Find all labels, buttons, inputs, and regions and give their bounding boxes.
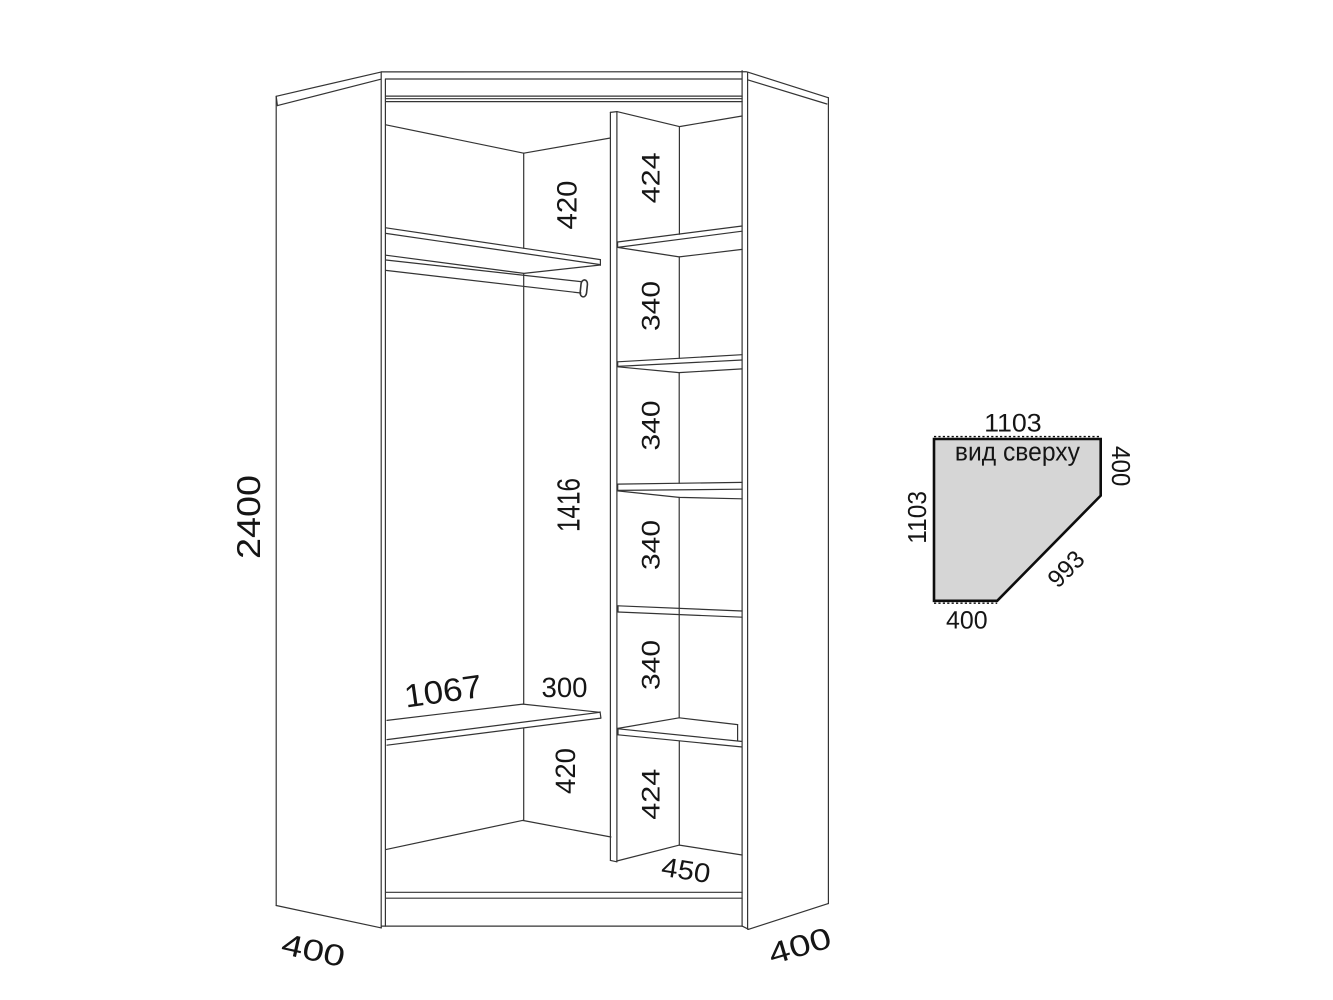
svg-text:400: 400 xyxy=(946,607,988,635)
svg-text:1103: 1103 xyxy=(984,410,1042,438)
svg-text:2400: 2400 xyxy=(230,475,267,559)
svg-text:вид сверху: вид сверху xyxy=(955,437,1080,467)
svg-text:424: 424 xyxy=(637,769,665,820)
svg-text:420: 420 xyxy=(552,181,583,230)
svg-text:340: 340 xyxy=(637,640,665,690)
svg-text:300: 300 xyxy=(542,672,588,703)
svg-text:420: 420 xyxy=(550,748,581,794)
svg-text:1416: 1416 xyxy=(551,478,587,532)
svg-text:340: 340 xyxy=(637,401,665,451)
svg-text:400: 400 xyxy=(1106,446,1136,486)
svg-text:340: 340 xyxy=(637,281,665,331)
svg-text:400: 400 xyxy=(765,922,836,972)
svg-text:993: 993 xyxy=(1042,545,1090,593)
svg-text:450: 450 xyxy=(659,852,712,889)
svg-text:424: 424 xyxy=(637,152,665,203)
svg-text:340: 340 xyxy=(637,520,665,570)
svg-text:400: 400 xyxy=(278,928,348,974)
svg-text:1103: 1103 xyxy=(902,491,932,544)
svg-text:1067: 1067 xyxy=(402,668,484,715)
